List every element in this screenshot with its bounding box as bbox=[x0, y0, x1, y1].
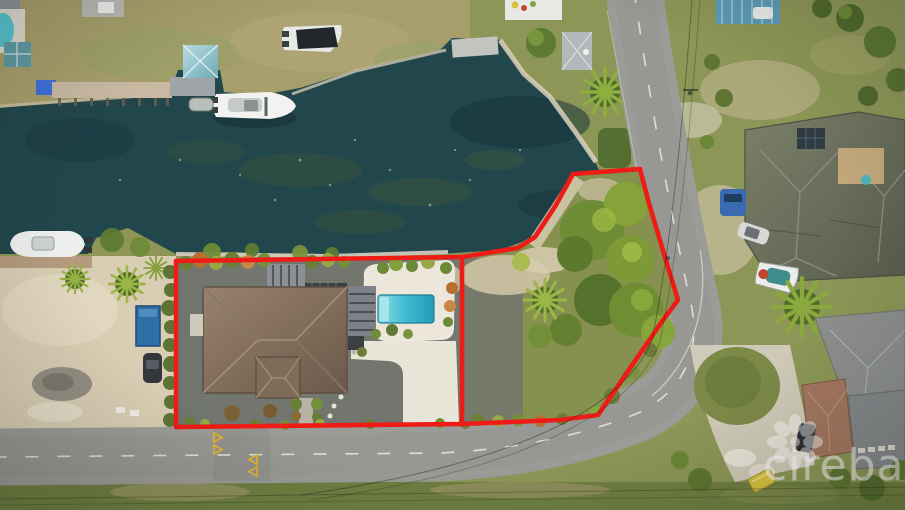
small-boat bbox=[98, 2, 114, 13]
home-parcel bbox=[178, 252, 470, 430]
courtyard-pool bbox=[861, 175, 871, 185]
hedge bbox=[598, 128, 631, 168]
cireba-watermark-text: cireba bbox=[763, 444, 905, 488]
courtyard bbox=[838, 148, 884, 184]
dock-shed bbox=[170, 77, 215, 96]
algae-patch bbox=[368, 178, 472, 206]
sand-lot bbox=[0, 231, 179, 430]
west-dock bbox=[0, 256, 92, 268]
white-car bbox=[753, 7, 773, 19]
floating-dock bbox=[451, 36, 498, 57]
aerial-scene bbox=[0, 0, 905, 510]
utility-pole bbox=[666, 256, 670, 260]
solar-panel bbox=[797, 128, 825, 149]
aerial-photo: cireba bbox=[0, 0, 905, 510]
boat-dock bbox=[52, 82, 172, 98]
side-stoop bbox=[190, 314, 203, 336]
pool-steps bbox=[380, 297, 389, 321]
dinghy-boat bbox=[189, 98, 213, 111]
algae-patch bbox=[238, 153, 362, 187]
neighbor-house-east bbox=[745, 112, 905, 282]
pickup-truck bbox=[720, 189, 746, 216]
